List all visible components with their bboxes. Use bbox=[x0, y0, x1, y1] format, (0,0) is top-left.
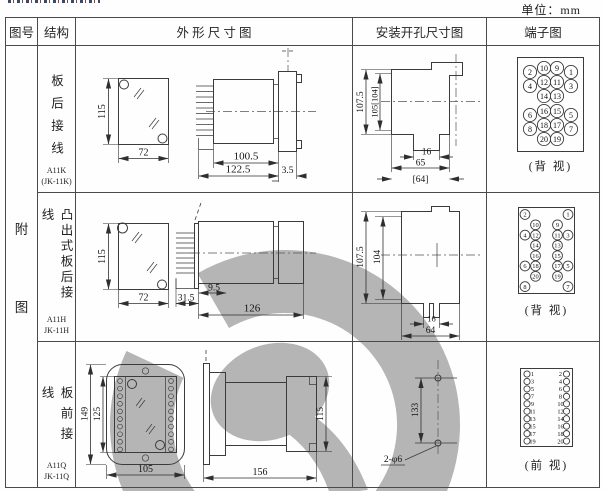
dim-inner-height: 105[104] bbox=[370, 86, 380, 117]
dimension-table: 图号 结构 外 形 尺 寸 图 安装开孔尺寸图 端子图 附 图 板后接线 A11… bbox=[5, 17, 600, 488]
dim-total-depth: 122.5 bbox=[226, 164, 251, 176]
terminal-number: 20 bbox=[540, 135, 548, 144]
terminal-number: 19 bbox=[553, 135, 561, 144]
dim-outer-height: 107.5 bbox=[356, 246, 366, 268]
terminal-number: 11 bbox=[529, 408, 535, 415]
terminal-circle bbox=[524, 371, 530, 377]
terminal-number: 13 bbox=[554, 243, 560, 250]
model-code: A11H JK-11H bbox=[44, 315, 69, 336]
outline-drawing-row2: 115 72 9.5 31.5 126 bbox=[76, 193, 353, 342]
terminal-number: 5 bbox=[531, 386, 534, 393]
terminal-number: 9 bbox=[531, 401, 534, 408]
dim-total-depth: 126 bbox=[244, 303, 261, 315]
terminal-number: 1 bbox=[531, 371, 534, 378]
structure-row2: 凸出式板后接线 A11H JK-11H bbox=[38, 193, 76, 342]
terminal-number: 18 bbox=[532, 263, 538, 270]
terminal-number: 14 bbox=[540, 92, 548, 101]
terminal-number: 20 bbox=[557, 438, 563, 445]
terminal-number: 3 bbox=[566, 232, 569, 239]
terminal-diagram-row2: (背 视) 2110941211314131615618175201987 bbox=[487, 193, 600, 342]
terminal-svg-row3: (前 视) 1357911131517192468101214161820 bbox=[487, 342, 599, 487]
model-code: A11K (JK-11K) bbox=[41, 166, 71, 187]
dim-side-height: 115 bbox=[316, 407, 326, 421]
mounting-svg-row3: 133 2-φ6 bbox=[353, 342, 486, 487]
terminal-number: 17 bbox=[553, 121, 561, 130]
structure-label: 凸出式板后接线 bbox=[38, 208, 76, 315]
terminal-circle bbox=[563, 438, 569, 444]
terminal-number: 6 bbox=[559, 386, 562, 393]
header-mounting: 安装开孔尺寸图 bbox=[353, 18, 487, 46]
terminal-number: 6 bbox=[528, 111, 532, 120]
terminal-number: 8 bbox=[528, 125, 532, 134]
header-figure-no: 图号 bbox=[6, 18, 38, 46]
dim-front-width: 72 bbox=[139, 148, 149, 159]
terminal-circle bbox=[563, 408, 569, 414]
outline-svg-row3: 149 125 105 115 156 bbox=[76, 342, 352, 487]
view-label: (背 视) bbox=[529, 159, 573, 173]
dim-body-depth: 100.5 bbox=[234, 151, 259, 163]
terminal-circle bbox=[563, 416, 569, 422]
terminal-number: 13 bbox=[553, 92, 561, 101]
header-structure: 结构 bbox=[38, 18, 76, 46]
dim-inner-height: 104 bbox=[373, 250, 383, 265]
clipped-header-text bbox=[8, 0, 100, 3]
terminal-circle bbox=[524, 393, 530, 399]
header-outline: 外 形 尺 寸 图 bbox=[76, 18, 353, 46]
outline-svg-row1: 115 72 100.5 122.5 bbox=[76, 46, 352, 192]
dim-front-width: 72 bbox=[139, 293, 149, 304]
dim-outer-width: 64 bbox=[426, 326, 436, 336]
terminal-number: 12 bbox=[532, 232, 538, 239]
structure-label: 板后接线 bbox=[47, 74, 66, 164]
dim-front-height: 115 bbox=[97, 249, 108, 264]
terminal-circle bbox=[563, 378, 569, 384]
terminal-circle bbox=[524, 401, 530, 407]
terminal-circle bbox=[524, 378, 530, 384]
terminal-circle bbox=[563, 371, 569, 377]
terminal-circle bbox=[563, 401, 569, 407]
terminal-circle bbox=[563, 386, 569, 392]
mounting-drawing-row3: 133 2-φ6 bbox=[353, 342, 487, 488]
dim-bracket-width: [64] bbox=[413, 175, 429, 185]
view-label: (前 视) bbox=[525, 458, 569, 472]
terminal-circle bbox=[563, 423, 569, 429]
datasheet-page: 单位：mm 图号 结构 外 形 尺 寸 图 安装开孔尺寸图 端子图 附 图 板后… bbox=[0, 0, 605, 491]
terminal-strips bbox=[118, 379, 174, 452]
dim-tab-width: 16 bbox=[422, 148, 432, 158]
dim-front-width: 105 bbox=[138, 464, 153, 475]
terminal-number: 10 bbox=[532, 222, 538, 229]
terminal-number: 19 bbox=[529, 438, 535, 445]
terminal-number: 16 bbox=[540, 107, 548, 116]
mounting-svg-row1: 107.5 105[104] 16 65 [64] bbox=[353, 46, 486, 192]
terminal-number: 17 bbox=[554, 263, 561, 270]
dim-total-depth: 156 bbox=[253, 467, 268, 478]
terminal-number: 4 bbox=[528, 82, 532, 91]
terminal-number: 20 bbox=[532, 274, 538, 281]
terminal-number: 15 bbox=[553, 107, 561, 116]
terminal-number: 12 bbox=[540, 78, 548, 87]
dim-flange-depth: 3.5 bbox=[282, 166, 294, 176]
terminal-number: 5 bbox=[566, 263, 569, 270]
terminal-svg-row1: (背 视) 2109141211314136161558181772019 bbox=[487, 46, 599, 192]
terminal-number: 3 bbox=[531, 379, 534, 386]
dim-gap: 9.5 bbox=[208, 284, 220, 294]
terminal-number: 3 bbox=[569, 82, 573, 91]
unit-label: 单位：mm bbox=[521, 1, 581, 18]
terminal-circle bbox=[563, 393, 569, 399]
terminal-number: 15 bbox=[529, 423, 535, 430]
mounting-svg-row2: 107.5 104 16 64 bbox=[353, 193, 486, 341]
mounting-drawing-row2: 107.5 104 16 64 bbox=[353, 193, 487, 342]
terminal-number: 18 bbox=[540, 121, 548, 130]
header-terminal: 端子图 bbox=[487, 18, 600, 46]
terminal-number: 7 bbox=[569, 125, 573, 134]
terminal-number: 8 bbox=[523, 284, 526, 291]
structure-label: 板前接线 bbox=[38, 386, 76, 461]
structure-row1: 板后接线 A11K (JK-11K) bbox=[38, 46, 76, 193]
terminal-number: 16 bbox=[557, 423, 563, 430]
terminal-number: 16 bbox=[532, 253, 538, 260]
terminal-number: 2 bbox=[523, 212, 526, 219]
terminal-number: 19 bbox=[554, 274, 560, 281]
terminal-number: 2 bbox=[559, 371, 562, 378]
holes-label: 2-φ6 bbox=[384, 455, 402, 465]
terminal-number: 9 bbox=[555, 64, 559, 73]
figure-group-label: 附 图 bbox=[6, 46, 38, 488]
view-label: (背 视) bbox=[525, 303, 569, 317]
terminal-svg-row2: (背 视) 2110941211314131615618175201987 bbox=[487, 193, 599, 341]
dim-inner-height: 125 bbox=[93, 407, 103, 422]
dim-outer-width: 65 bbox=[416, 159, 426, 169]
terminal-number: 12 bbox=[557, 408, 563, 415]
outline-drawing-row1: 115 72 100.5 122.5 bbox=[76, 46, 353, 193]
mounting-drawing-row1: 107.5 105[104] 16 65 [64] bbox=[353, 46, 487, 193]
terminal-number: 10 bbox=[540, 64, 548, 73]
terminal-number: 18 bbox=[557, 431, 563, 438]
terminal-number: 8 bbox=[559, 394, 562, 401]
terminal-number: 2 bbox=[528, 68, 532, 77]
terminal-number: 11 bbox=[553, 78, 561, 87]
model-code: A11Q JK-11Q bbox=[44, 461, 69, 482]
dim-outer-height: 107.5 bbox=[356, 91, 366, 113]
terminal-number: 1 bbox=[569, 68, 573, 77]
terminal-number: 9 bbox=[556, 222, 559, 229]
outline-drawing-row3: 149 125 105 115 156 bbox=[76, 342, 353, 488]
terminal-number: 1 bbox=[566, 212, 569, 219]
dim-front-height: 115 bbox=[97, 104, 108, 119]
terminal-number: 10 bbox=[557, 401, 563, 408]
terminal-diagram-row1: (背 视) 2109141211314136161558181772019 bbox=[487, 46, 600, 193]
structure-row3: 板前接线 A11Q JK-11Q bbox=[38, 342, 76, 488]
terminal-circle bbox=[524, 386, 530, 392]
terminal-number: 14 bbox=[532, 243, 539, 250]
outline-svg-row2: 115 72 9.5 31.5 126 bbox=[76, 193, 352, 341]
terminal-circle bbox=[563, 431, 569, 437]
terminal-diagram-row3: (前 视) 1357911131517192468101214161820 bbox=[487, 342, 600, 488]
terminal-number: 13 bbox=[529, 416, 535, 423]
terminal-number: 5 bbox=[569, 111, 573, 120]
terminal-number: 17 bbox=[529, 431, 535, 438]
terminal-number: 7 bbox=[531, 394, 534, 401]
dim-tab-width: 16 bbox=[427, 314, 436, 324]
terminal-number: 4 bbox=[559, 379, 563, 386]
dim-outer-height: 149 bbox=[81, 407, 91, 422]
dim-panel-offset: 31.5 bbox=[178, 294, 195, 304]
terminal-number: 11 bbox=[554, 232, 560, 239]
terminal-number: 6 bbox=[523, 263, 526, 270]
terminal-number: 15 bbox=[554, 253, 560, 260]
dim-hole-spacing: 133 bbox=[411, 403, 421, 418]
